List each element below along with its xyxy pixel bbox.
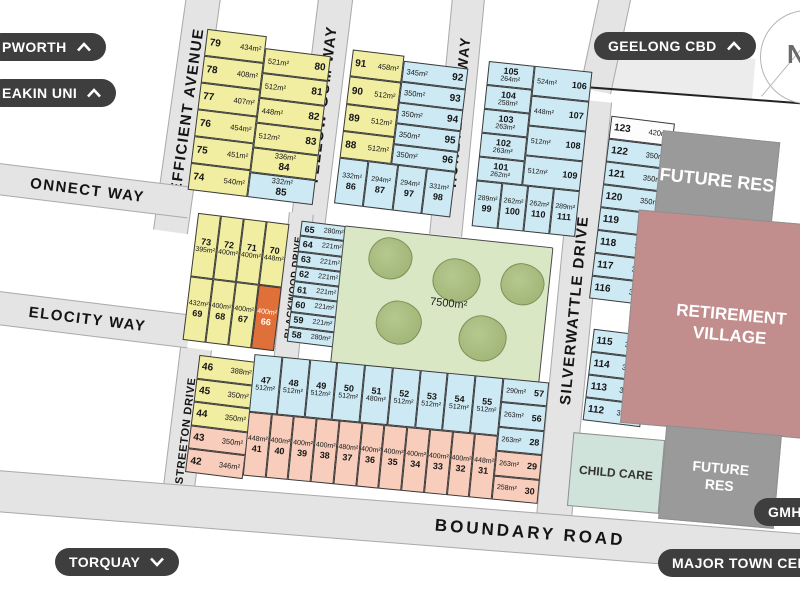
lot-area: 221m² <box>320 258 341 267</box>
lot-area: 221m² <box>318 273 339 282</box>
lot-area: 512m² <box>255 384 276 394</box>
lot-area: 350m² <box>398 129 420 141</box>
lot-number: 114 <box>593 358 610 371</box>
lot-number: 41 <box>251 443 262 454</box>
lot-number: 111 <box>557 211 572 223</box>
lot-number: 88 <box>345 140 357 152</box>
lot-area: 407m² <box>233 96 255 108</box>
lot-number: 123 <box>613 122 631 135</box>
lot-area: 512m² <box>371 116 393 128</box>
zone-label: CHILD CARE <box>578 462 653 483</box>
badge-epworth[interactable]: PWORTH <box>0 33 106 61</box>
badge-deakin-uni[interactable]: EAKIN UNI <box>0 79 116 107</box>
lot-number: 106 <box>571 80 587 92</box>
chevron-up-icon <box>86 88 102 98</box>
lot-area: 263m² <box>501 436 521 445</box>
road-label: ONNECT WAY <box>29 175 146 206</box>
lot-area: 280m² <box>323 228 344 237</box>
lot-number: 39 <box>297 447 308 458</box>
lot-area: 448m² <box>534 108 554 117</box>
tree-icon <box>498 261 546 307</box>
zone-label: FUTURE RES <box>659 163 776 197</box>
lot-number: 90 <box>351 85 363 97</box>
lot-number: 95 <box>444 134 456 146</box>
lot-area: 512m² <box>421 400 442 410</box>
block-74-85: 79434m²78408m²77407m²76454m²75451m²74540… <box>188 29 333 205</box>
lot-area: 400m² <box>240 252 261 262</box>
chevron-down-icon <box>149 557 165 567</box>
lot-area: 258m² <box>497 99 518 109</box>
lot-area: 346m² <box>218 460 240 472</box>
lot-number: 94 <box>446 113 458 125</box>
badge-label: PWORTH <box>2 39 67 55</box>
lot-30[interactable]: 258m²30 <box>492 475 540 504</box>
lot-number: 93 <box>449 92 461 104</box>
lot-number: 98 <box>432 191 443 202</box>
lot-area: 512m² <box>393 398 414 408</box>
lot-area: 263m² <box>492 147 513 157</box>
tree-icon <box>366 235 414 281</box>
compass-north-label: N <box>787 39 800 70</box>
park-area-label: 7500m² <box>429 296 467 312</box>
lot-number: 81 <box>311 86 323 98</box>
badge-torquay[interactable]: TORQUAY <box>55 548 179 576</box>
tree-icon <box>374 298 424 347</box>
lot-area: 221m² <box>312 318 333 327</box>
lot-area: 512m² <box>258 131 280 143</box>
lot-area: 395m² <box>195 246 216 256</box>
road-velocity-way: ELOCITY WAY <box>0 290 191 349</box>
badge-label: GEELONG CBD <box>608 38 717 54</box>
lot-area: 400m² <box>218 249 239 259</box>
lot-area: 350m² <box>221 436 243 448</box>
chevron-up-icon <box>726 41 742 51</box>
lot-number: 85 <box>275 187 287 200</box>
lot-number: 56 <box>531 413 542 424</box>
lot-area: 350m² <box>396 150 418 162</box>
lot-number: 46 <box>201 362 213 374</box>
lot-area: 350m² <box>224 413 246 425</box>
lot-number: 121 <box>608 168 626 181</box>
lot-number: 34 <box>410 458 421 469</box>
lot-number: 43 <box>193 432 205 444</box>
lot-area: 512m² <box>264 81 286 93</box>
lot-area: 263m² <box>499 460 519 469</box>
lot-area: 345m² <box>406 67 428 79</box>
badge-label: TORQUAY <box>69 554 140 570</box>
lot-number: 33 <box>432 461 443 472</box>
lot-number: 77 <box>202 91 214 103</box>
lot-area: 263m² <box>495 123 516 133</box>
lot-area: 262m² <box>490 171 511 181</box>
lot-number: 91 <box>355 58 367 70</box>
lot-111[interactable]: 289m²111 <box>549 189 580 237</box>
lot-area: 264m² <box>500 75 521 85</box>
estate-map: EFFICIENT AVENUE YELLOW GUM WAY HONEYEAT… <box>0 0 800 600</box>
lot-number: 99 <box>481 203 492 214</box>
lot-area: 512m² <box>374 89 396 101</box>
lot-number: 61 <box>297 284 308 295</box>
lot-number: 96 <box>441 155 453 167</box>
lot-number: 57 <box>534 388 545 399</box>
lot-number: 69 <box>192 308 203 319</box>
lot-number: 113 <box>590 381 607 394</box>
zone-child-care: CHILD CARE <box>567 432 665 514</box>
lot-area: 290m² <box>506 387 526 396</box>
lot-area: 458m² <box>377 62 399 74</box>
lot-area: 221m² <box>321 243 342 252</box>
lot-number: 112 <box>587 404 604 417</box>
lot-area: 512m² <box>282 387 303 397</box>
block-86-98: 91458m²90512m²89512m²88512m² 345m²92350m… <box>334 49 469 217</box>
lot-number: 74 <box>193 171 205 183</box>
road-label: SILVERWATTLE DRIVE <box>556 214 591 405</box>
lot-number: 97 <box>403 188 414 199</box>
lot-area: 448m² <box>261 106 283 118</box>
lot-number: 76 <box>199 118 211 130</box>
lot-area: 350m² <box>401 109 423 121</box>
lot-number: 92 <box>451 72 463 84</box>
lot-number: 89 <box>348 112 360 124</box>
lot-number: 118 <box>599 236 616 249</box>
lot-number: 36 <box>364 454 375 465</box>
lot-number: 86 <box>345 181 356 192</box>
lot-area: 434m² <box>240 42 262 54</box>
badge-label: MAJOR TOWN CENTRE <box>672 555 800 571</box>
zone-retirement-village: RETIREMENT VILLAGE <box>620 210 800 441</box>
chevron-up-icon <box>76 42 92 52</box>
block-99-111: 105264m²104258m²103263m²102263m²101262m²… <box>472 61 593 237</box>
lot-area: 480m² <box>365 395 386 405</box>
lot-number: 44 <box>196 408 208 420</box>
road-label: BOUNDARY ROAD <box>434 516 626 551</box>
lot-number: 100 <box>504 205 520 217</box>
lot-number: 40 <box>274 445 285 456</box>
badge-major-town-centre[interactable]: MAJOR TOWN CENTRE <box>658 549 800 577</box>
lot-number: 80 <box>314 61 326 73</box>
badge-label: GMHBA <box>768 504 800 520</box>
lot-area: 221m² <box>316 288 337 297</box>
lot-area: 512m² <box>530 137 550 146</box>
lot-number: 60 <box>295 299 306 310</box>
lot-area: 221m² <box>314 303 335 312</box>
lot-number: 122 <box>611 145 629 158</box>
lot-number: 59 <box>293 315 304 326</box>
lot-number: 45 <box>198 385 210 397</box>
lot-number: 64 <box>302 239 313 250</box>
zone-label: RETIREMENT VILLAGE <box>646 297 800 354</box>
lot-number: 31 <box>478 465 489 476</box>
tree-icon <box>456 313 509 364</box>
lot-number: 75 <box>196 145 208 157</box>
road-label: ELOCITY WAY <box>28 303 147 334</box>
lot-number: 28 <box>529 437 540 448</box>
lot-area: 448m² <box>263 254 284 264</box>
lot-area: 280m² <box>310 333 331 342</box>
lot-number: 67 <box>237 313 248 324</box>
lot-number: 65 <box>304 224 315 235</box>
lot-area: 451m² <box>226 149 248 161</box>
lot-number: 82 <box>308 111 320 123</box>
lot-area: 512m² <box>527 167 547 176</box>
lot-area: 512m² <box>448 403 469 413</box>
lot-number: 109 <box>562 169 578 181</box>
lot-area: 540m² <box>223 176 245 188</box>
lot-area: 258m² <box>496 484 516 493</box>
lot-number: 58 <box>291 330 302 341</box>
zone-label: FUTURE RES <box>676 456 765 498</box>
compass: N <box>760 10 800 104</box>
lot-number: 120 <box>605 191 623 204</box>
lot-number: 37 <box>342 452 353 463</box>
lot-area: 512m² <box>310 390 331 400</box>
lot-98[interactable]: 331m²98 <box>421 169 456 218</box>
lot-number: 30 <box>524 485 535 496</box>
lot-number: 108 <box>565 140 581 152</box>
lot-number: 119 <box>602 214 619 227</box>
lot-area: 512m² <box>338 392 359 402</box>
lot-area: 408m² <box>236 69 258 81</box>
lot-number: 62 <box>298 269 309 280</box>
lot-number: 68 <box>215 311 226 322</box>
lot-number: 78 <box>206 64 218 76</box>
badge-gmhba[interactable]: GMHBA <box>754 498 800 526</box>
lot-area: 263m² <box>504 411 524 420</box>
lot-area: 388m² <box>230 366 252 378</box>
badge-geelong-cbd[interactable]: GEELONG CBD <box>594 32 756 60</box>
badge-label: EAKIN UNI <box>2 85 77 101</box>
lot-area: 512m² <box>367 143 389 155</box>
lot-number: 66 <box>260 316 271 327</box>
block-66-73: 73395m²72400m²71400m²70448m² 432m²69400m… <box>183 213 290 351</box>
lot-number: 116 <box>594 282 611 295</box>
lot-area: 350m² <box>403 88 425 100</box>
lot-number: 63 <box>300 254 311 265</box>
lot-number: 87 <box>374 184 385 195</box>
lot-area: 524m² <box>537 78 557 87</box>
lot-number: 32 <box>455 463 466 474</box>
lot-number: 107 <box>568 110 584 122</box>
lot-area: 454m² <box>230 122 252 134</box>
lot-number: 29 <box>527 461 538 472</box>
lot-number: 35 <box>387 456 398 467</box>
lot-area: 350m² <box>227 390 249 402</box>
lot-number: 115 <box>596 335 613 348</box>
lot-number: 110 <box>530 208 546 220</box>
lot-number: 38 <box>319 450 330 461</box>
lot-number: 117 <box>597 259 614 272</box>
lot-number: 83 <box>305 136 317 148</box>
lot-area: 512m² <box>476 406 497 416</box>
lot-number: 79 <box>209 37 221 49</box>
lot-number: 84 <box>278 162 290 175</box>
lot-number: 42 <box>190 455 202 467</box>
lot-area: 521m² <box>267 57 289 69</box>
